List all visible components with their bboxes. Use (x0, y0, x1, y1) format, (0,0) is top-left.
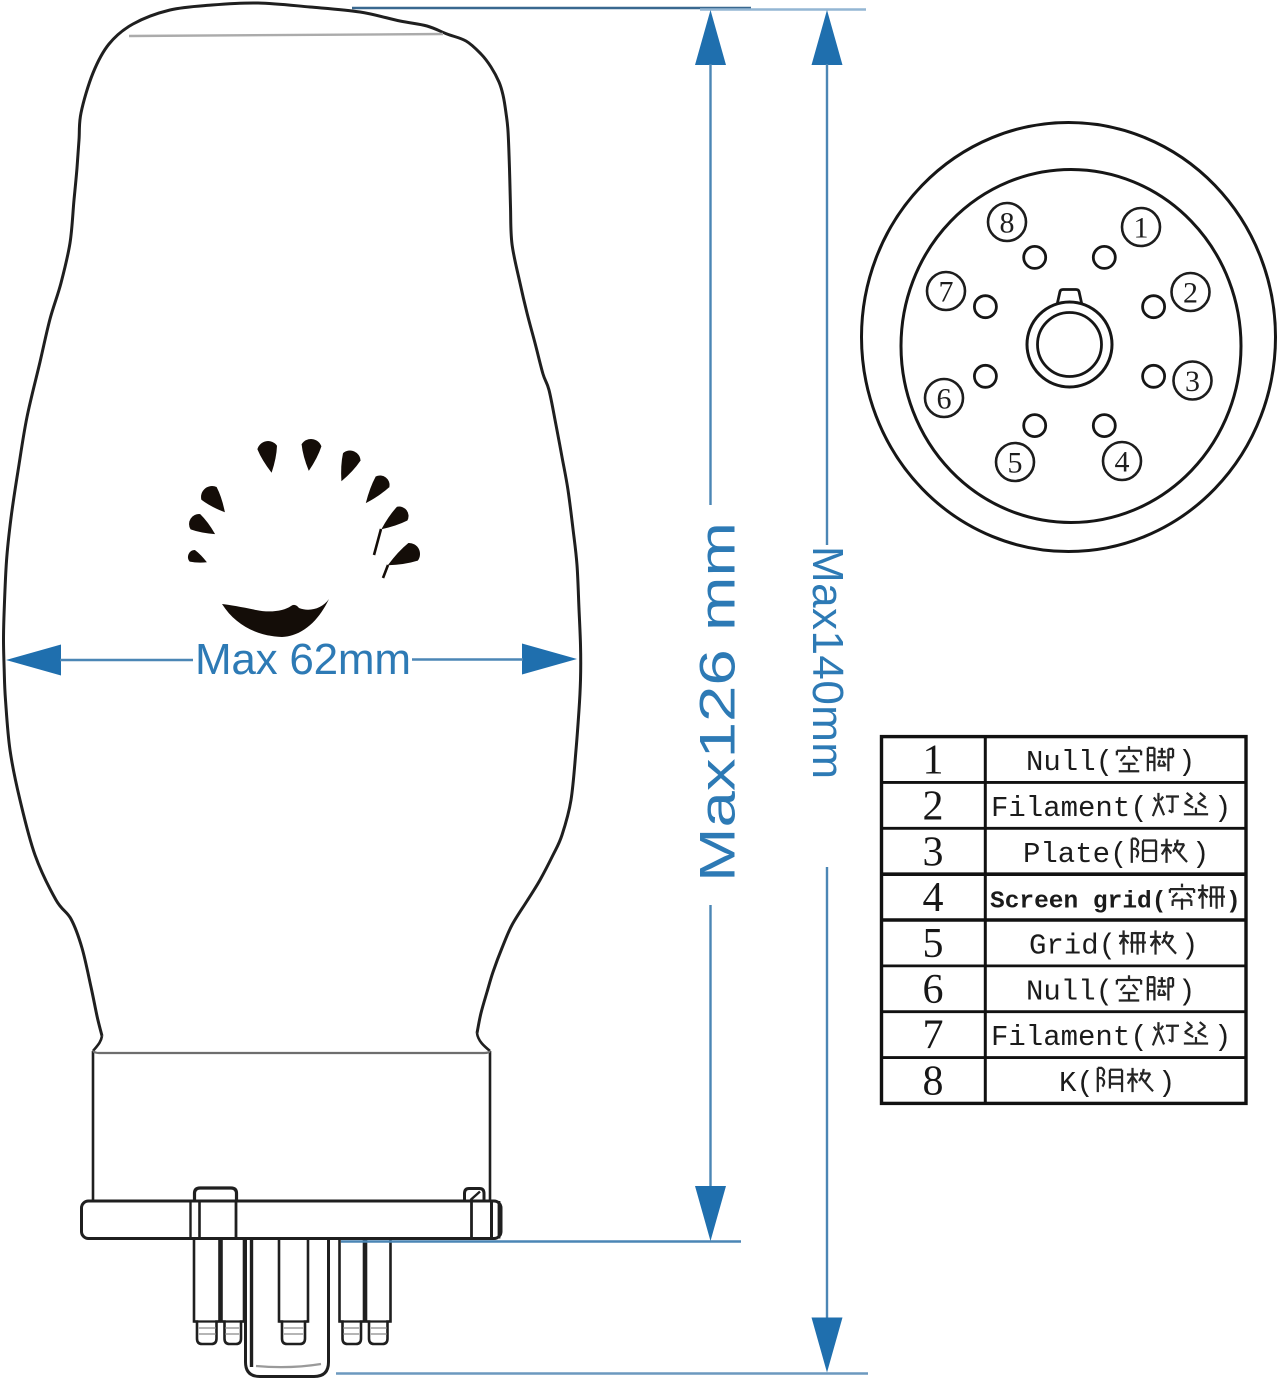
svg-text:): ) (1226, 889, 1241, 916)
svg-text:): ) (1178, 975, 1195, 1008)
svg-text:Plate(: Plate( (1023, 838, 1127, 871)
svg-text:Max126 mm: Max126 mm (690, 522, 746, 882)
svg-text:Grid(: Grid( (1029, 930, 1116, 963)
svg-text:Filament(: Filament( (991, 1021, 1148, 1054)
svg-text:Filament(: Filament( (991, 792, 1148, 825)
svg-text:3: 3 (1185, 365, 1200, 398)
svg-text:1: 1 (1134, 212, 1149, 245)
svg-text:): ) (1214, 1021, 1231, 1054)
svg-text:3: 3 (923, 829, 944, 875)
svg-text:4: 4 (1115, 446, 1130, 479)
svg-text:Max 62mm: Max 62mm (195, 635, 411, 684)
svg-text:2: 2 (923, 784, 944, 830)
svg-text:5: 5 (923, 921, 944, 967)
svg-text:): ) (1192, 838, 1209, 871)
svg-text:Null(: Null( (1026, 746, 1113, 779)
svg-text:): ) (1181, 930, 1198, 963)
svg-text:6: 6 (937, 383, 952, 416)
svg-text:8: 8 (923, 1059, 944, 1105)
svg-text:8: 8 (1000, 207, 1015, 240)
svg-text:1: 1 (923, 738, 944, 784)
svg-text:Null(: Null( (1026, 975, 1113, 1008)
svg-text:): ) (1214, 792, 1231, 825)
svg-text:Screen grid(: Screen grid( (990, 889, 1166, 916)
svg-text:6: 6 (923, 967, 944, 1013)
svg-text:): ) (1158, 1067, 1175, 1100)
svg-text:): ) (1178, 746, 1195, 779)
svg-text:4: 4 (923, 875, 944, 921)
svg-text:K(: K( (1059, 1067, 1094, 1100)
svg-text:Max140mm: Max140mm (803, 546, 852, 779)
svg-text:7: 7 (939, 276, 954, 309)
svg-text:7: 7 (923, 1013, 944, 1059)
svg-text:5: 5 (1008, 447, 1023, 480)
svg-text:2: 2 (1183, 277, 1198, 310)
